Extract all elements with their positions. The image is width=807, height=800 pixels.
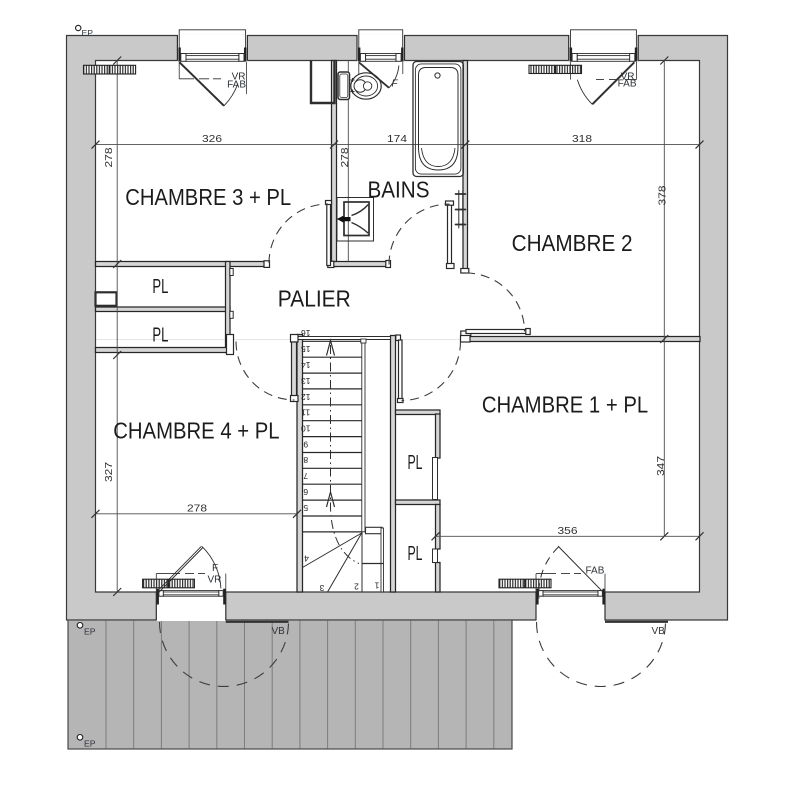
- svg-text:F: F: [212, 563, 218, 574]
- svg-text:CHAMBRE 1 + PL: CHAMBRE 1 + PL: [482, 391, 648, 417]
- svg-text:13: 13: [301, 376, 311, 386]
- svg-text:EP: EP: [82, 28, 94, 38]
- svg-text:11: 11: [301, 408, 310, 418]
- svg-text:4: 4: [304, 554, 309, 564]
- svg-text:CHAMBRE 4 + PL: CHAMBRE 4 + PL: [113, 418, 279, 444]
- svg-text:FAB: FAB: [586, 566, 605, 577]
- svg-text:PALIER: PALIER: [278, 286, 351, 312]
- svg-text:VB: VB: [652, 626, 666, 637]
- svg-text:378: 378: [658, 185, 669, 206]
- svg-text:9: 9: [303, 439, 308, 449]
- svg-text:CHAMBRE 2: CHAMBRE 2: [512, 230, 633, 256]
- svg-text:1: 1: [374, 581, 379, 591]
- svg-text:EP: EP: [84, 739, 96, 749]
- svg-text:174: 174: [387, 134, 408, 145]
- svg-text:FAB: FAB: [227, 79, 246, 90]
- svg-text:EP: EP: [84, 627, 96, 637]
- svg-text:PL: PL: [408, 542, 423, 565]
- svg-text:CHAMBRE 3 + PL: CHAMBRE 3 + PL: [125, 184, 291, 210]
- svg-text:12: 12: [301, 392, 311, 402]
- svg-text:327: 327: [104, 461, 115, 482]
- svg-text:14: 14: [301, 360, 311, 370]
- svg-text:5: 5: [303, 503, 308, 513]
- svg-text:3: 3: [319, 583, 324, 593]
- svg-text:347: 347: [656, 455, 667, 476]
- svg-text:VR: VR: [208, 575, 222, 586]
- svg-text:278: 278: [187, 503, 208, 514]
- svg-text:PL: PL: [152, 323, 168, 346]
- svg-text:15: 15: [301, 344, 311, 354]
- svg-text:7: 7: [303, 471, 308, 481]
- svg-text:10: 10: [301, 424, 311, 434]
- svg-text:6: 6: [303, 487, 308, 497]
- svg-text:326: 326: [202, 134, 223, 145]
- svg-text:356: 356: [558, 526, 579, 537]
- svg-text:278: 278: [340, 147, 351, 168]
- svg-text:PL: PL: [408, 451, 423, 474]
- svg-text:F: F: [392, 79, 399, 90]
- svg-text:318: 318: [572, 134, 593, 145]
- svg-text:PL: PL: [152, 275, 168, 298]
- svg-text:2: 2: [354, 582, 359, 592]
- svg-text:16: 16: [301, 328, 311, 338]
- svg-text:8: 8: [303, 455, 308, 465]
- svg-text:FAB: FAB: [618, 78, 637, 89]
- svg-text:VB: VB: [272, 626, 286, 637]
- svg-text:BAINS: BAINS: [368, 177, 430, 203]
- svg-text:278: 278: [104, 147, 115, 168]
